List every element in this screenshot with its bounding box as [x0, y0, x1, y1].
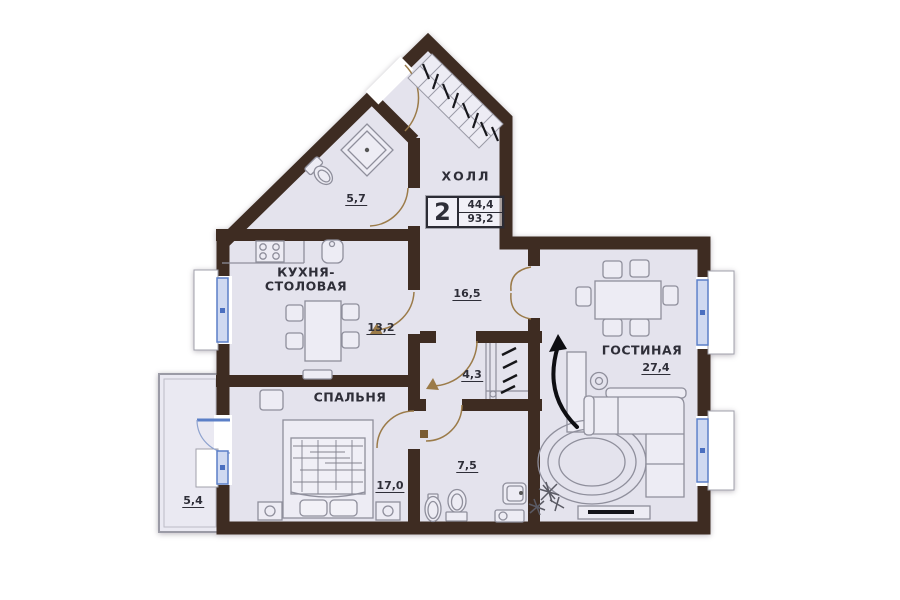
dining-chair [663, 286, 678, 305]
tv-icon [588, 510, 634, 514]
washing-machine-icon [495, 510, 524, 522]
bidet-icon [425, 494, 441, 522]
kitchen-window [194, 270, 232, 350]
bathroom-sink-icon [503, 483, 526, 504]
stove-icon [256, 241, 284, 262]
hall-label: ХОЛЛ [441, 169, 490, 184]
bed [283, 420, 373, 518]
floor-plan-page: ХОЛЛ 16,5 5,7 КУХНЯ- СТОЛОВАЯ 13,2 СПАЛЬ… [0, 0, 900, 600]
pillow [330, 500, 357, 516]
living-area-value: 44,4 [459, 198, 502, 213]
shower-room-area: 5,7 [345, 192, 367, 206]
dining-chair [603, 319, 622, 336]
dining-chair [630, 260, 649, 277]
total-area-value: 93,2 [459, 213, 502, 227]
hall-area: 16,5 [452, 287, 481, 301]
nightstand [258, 502, 282, 520]
bathroom-area: 7,5 [456, 459, 478, 473]
kitchen-table [305, 301, 341, 361]
room-count: 2 [428, 198, 459, 226]
corridor-area: 4,3 [461, 368, 483, 382]
bedroom-tv [303, 370, 332, 379]
kitchen-chair [342, 332, 359, 348]
area-values: 44,4 93,2 [459, 198, 502, 226]
dining-table [595, 281, 661, 319]
living-room-area: 27,4 [641, 361, 670, 375]
living-room-window-lower [696, 411, 734, 490]
tv-stand [578, 506, 650, 519]
floor-plan [0, 0, 900, 600]
kitchen-chair [286, 333, 303, 349]
kitchen-area: 13,2 [366, 321, 395, 335]
dining-chair [603, 261, 622, 278]
balcony-area: 5,4 [182, 494, 204, 508]
kitchen-chair [286, 305, 303, 321]
toilet-icon [446, 490, 467, 522]
dining-chair [630, 319, 649, 336]
bedroom-area: 17,0 [375, 479, 404, 493]
nightstand [376, 502, 400, 520]
living-room-label: ГОСТИНАЯ [602, 343, 683, 358]
bedroom-label: СПАЛЬНЯ [314, 390, 387, 405]
apartment-info-card: 2 44,4 93,2 [426, 196, 504, 228]
pillow [300, 500, 327, 516]
bedroom-armchair [260, 390, 283, 410]
kitchen-chair [342, 304, 359, 320]
door-hinge-block [420, 430, 428, 438]
kitchen-label-line2: СТОЛОВАЯ [265, 279, 347, 294]
dining-chair [576, 287, 591, 306]
kitchen-label-line1: КУХНЯ- [277, 265, 335, 280]
living-room-window-upper [696, 271, 734, 354]
kitchen-sink-icon [322, 240, 343, 263]
